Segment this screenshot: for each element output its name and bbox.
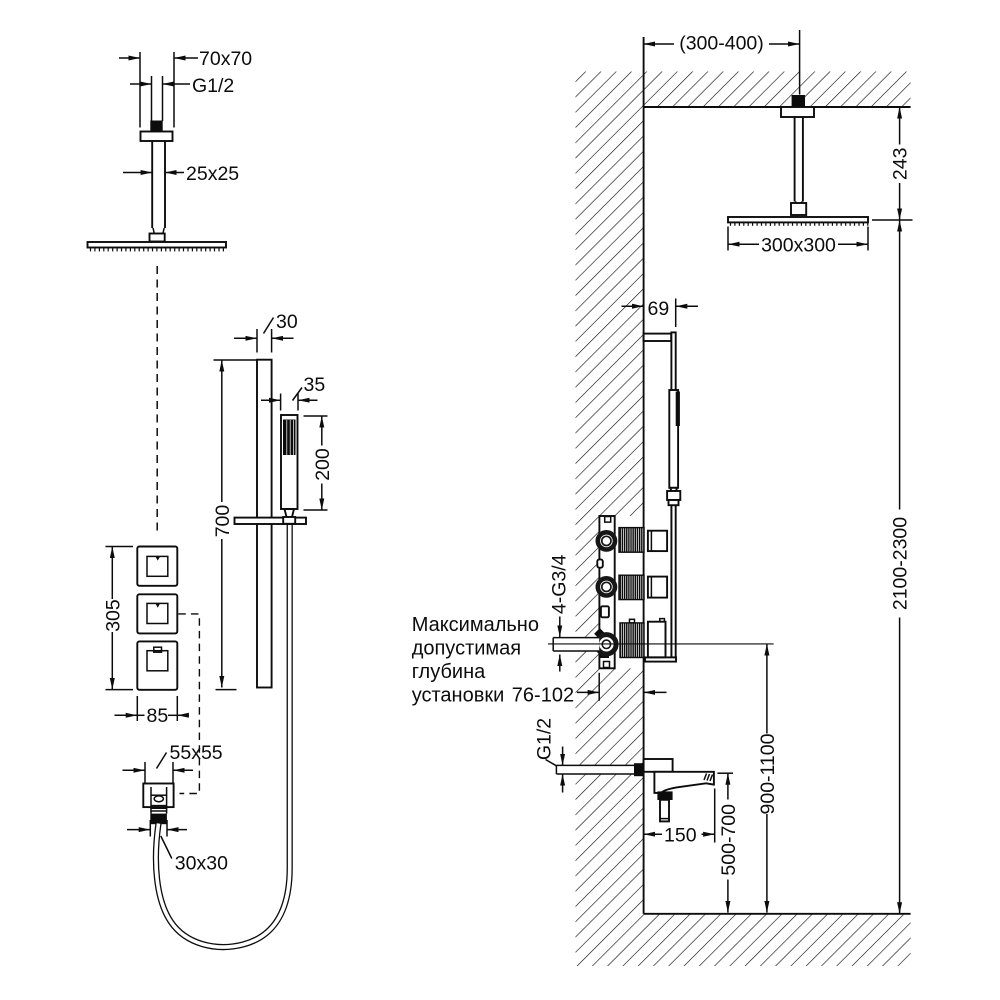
svg-text:G1/2: G1/2 <box>192 75 234 97</box>
svg-text:35: 35 <box>304 374 326 396</box>
svg-text:76-102: 76-102 <box>512 684 574 706</box>
svg-text:900-1100: 900-1100 <box>757 733 779 814</box>
svg-text:G1/2: G1/2 <box>533 718 555 760</box>
svg-text:150: 150 <box>664 824 697 846</box>
svg-text:300x300: 300x300 <box>761 235 836 257</box>
svg-text:305: 305 <box>102 599 124 632</box>
svg-text:глубина: глубина <box>412 661 486 683</box>
svg-text:2100-2300: 2100-2300 <box>890 517 912 610</box>
svg-text:55x55: 55x55 <box>170 742 223 764</box>
svg-text:69: 69 <box>648 298 670 320</box>
svg-text:допустимая: допустимая <box>412 637 521 659</box>
svg-text:4-G3/4: 4-G3/4 <box>548 554 570 614</box>
svg-text:243: 243 <box>890 148 912 181</box>
svg-text:30x30: 30x30 <box>175 853 228 875</box>
svg-text:70x70: 70x70 <box>199 48 252 70</box>
svg-text:700: 700 <box>212 505 234 538</box>
svg-text:200: 200 <box>312 448 334 481</box>
svg-text:85: 85 <box>147 705 169 727</box>
svg-text:25x25: 25x25 <box>186 163 239 185</box>
svg-text:(300-400): (300-400) <box>679 33 764 55</box>
svg-text:установки: установки <box>412 684 505 706</box>
svg-text:500-700: 500-700 <box>718 804 740 876</box>
svg-text:30: 30 <box>276 311 298 333</box>
svg-text:Максимально: Максимально <box>412 614 539 636</box>
